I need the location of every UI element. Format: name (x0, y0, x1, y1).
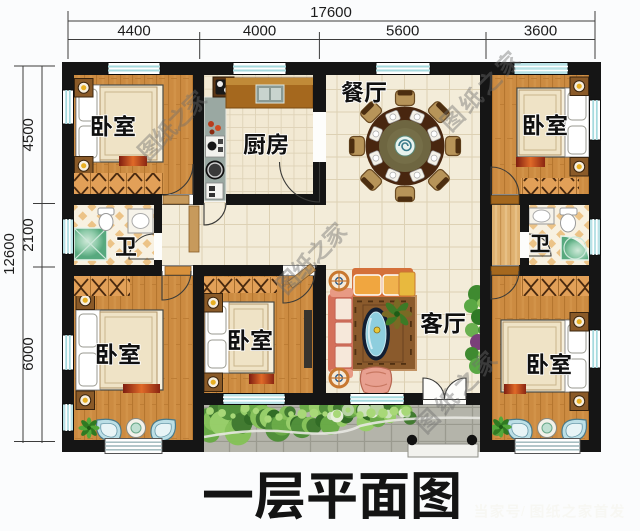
svg-text:12600: 12600 (1, 233, 18, 275)
svg-text:6000: 6000 (20, 337, 37, 370)
svg-text:2100: 2100 (20, 218, 37, 251)
svg-text:5600: 5600 (386, 23, 419, 40)
svg-text:17600: 17600 (310, 4, 352, 21)
svg-text:3600: 3600 (524, 23, 557, 40)
svg-text:4400: 4400 (117, 23, 150, 40)
svg-text:4000: 4000 (243, 23, 276, 40)
svg-text:/: / (521, 503, 525, 519)
svg-text:4500: 4500 (20, 118, 37, 151)
